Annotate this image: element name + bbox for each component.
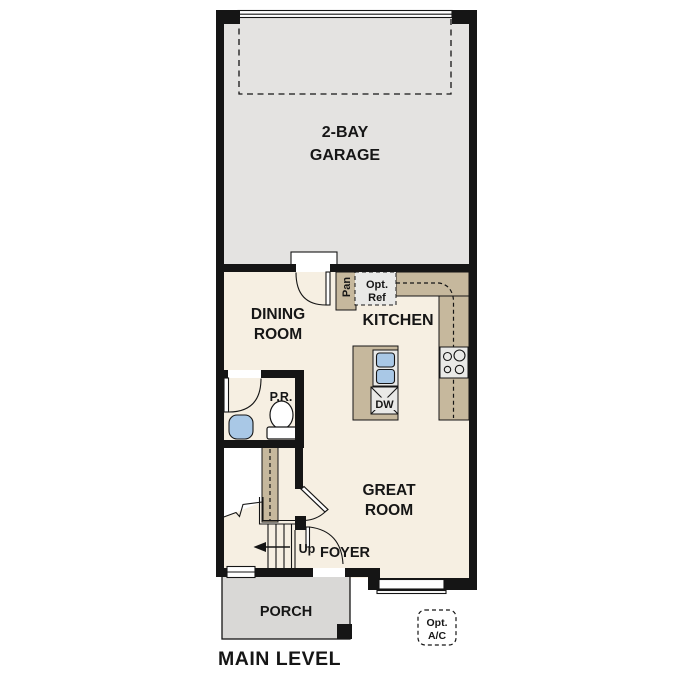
toilet-bowl	[270, 401, 293, 429]
pantry-label: Pan	[341, 277, 353, 297]
opt-ac-label-line2: A/C	[428, 630, 447, 642]
opt-ref-label-line2: Ref	[368, 292, 386, 304]
sink-basin	[377, 353, 395, 367]
powder-room-bottom-wall	[216, 440, 304, 448]
floor-plan-svg: 2-BAY GARAGE DINING ROOM KITCHEN GREAT R…	[0, 0, 687, 687]
powder-room-sink	[229, 415, 253, 439]
great-room-label-line1: GREAT	[362, 482, 416, 499]
stairs-up-label: Up	[299, 542, 316, 556]
dining-label-line2: ROOM	[254, 326, 302, 343]
left-exterior-wall	[216, 10, 224, 576]
porch-post	[337, 624, 352, 639]
great-room-window	[379, 580, 444, 590]
right-exterior-wall	[469, 10, 477, 590]
powder-room-door-opening	[228, 370, 261, 378]
sink-basin	[377, 370, 395, 384]
dining-label-line1: DINING	[251, 306, 305, 323]
foyer-wall-stub	[295, 516, 306, 530]
foyer-great-room-wall	[295, 448, 303, 489]
front-door-opening	[313, 568, 345, 577]
garage-entry-opening	[296, 264, 330, 272]
garage-label-line2: GARAGE	[310, 147, 381, 164]
opt-ref-label-line1: Opt.	[366, 279, 388, 291]
garage-house-wall	[216, 264, 477, 272]
kitchen-counter-top	[396, 272, 469, 296]
great-room-label-line2: ROOM	[365, 502, 413, 519]
toilet-tank	[267, 427, 297, 439]
floor-plan-page: 2-BAY GARAGE DINING ROOM KITCHEN GREAT R…	[0, 0, 687, 687]
foyer-label: FOYER	[320, 545, 370, 561]
dishwasher-label: DW	[375, 399, 394, 411]
garage-door-post-left	[216, 10, 240, 24]
garage-label-line1: 2-BAY	[322, 124, 369, 141]
great-room-window-sill	[377, 591, 446, 594]
garage-entry-jamb	[291, 252, 337, 265]
powder-room-label: P.R.	[270, 390, 293, 404]
porch-label: PORCH	[260, 604, 312, 620]
front-wall-center	[345, 568, 368, 577]
kitchen-label: KITCHEN	[362, 312, 433, 329]
opt-ac-label-line1: Opt.	[427, 617, 448, 629]
plan-title: MAIN LEVEL	[218, 648, 341, 670]
garage-door-post-right	[452, 10, 477, 24]
powder-room-door-leaf	[224, 378, 229, 412]
garage-entry-door-leaf	[326, 272, 330, 305]
powder-room-right-wall	[295, 370, 304, 448]
front-wall-corner	[368, 568, 380, 590]
